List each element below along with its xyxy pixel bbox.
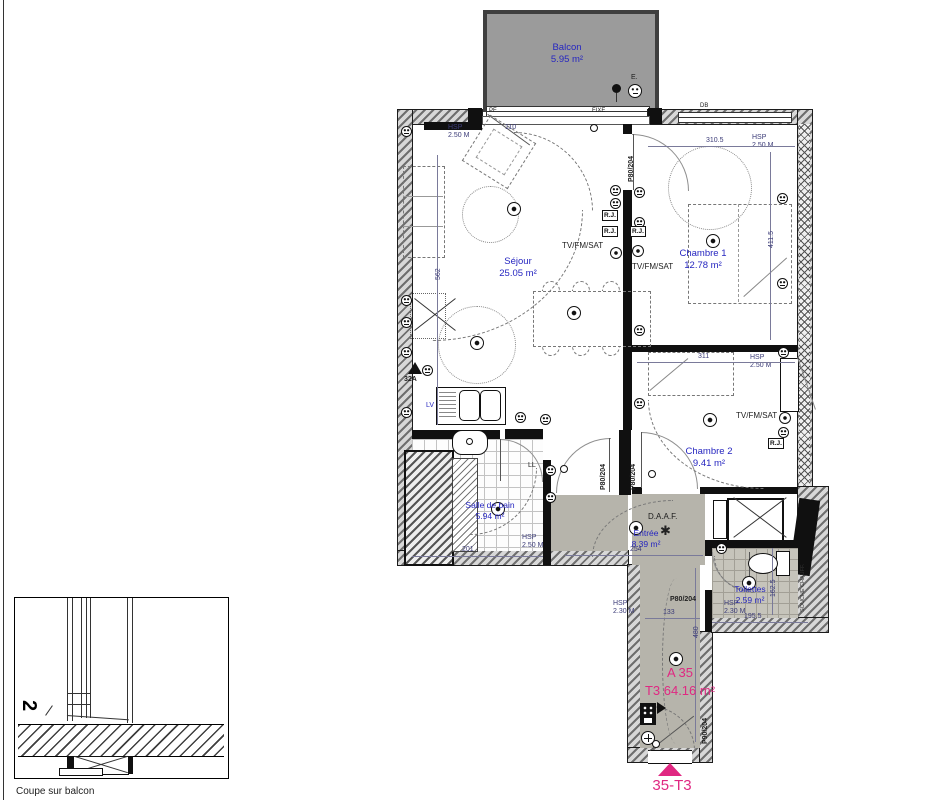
window-pf-label: PF <box>489 108 497 114</box>
dim-133: 133 <box>663 609 675 617</box>
ch2-door-leaf <box>641 432 642 488</box>
balcony-light-stem <box>616 93 617 102</box>
dim-line <box>648 146 795 147</box>
dim-line <box>712 622 808 623</box>
rj45-label: R.J. <box>604 228 616 235</box>
shaft-line1: SOUCHE <box>800 588 806 612</box>
sink-bowl-left <box>459 390 480 421</box>
rj45-outlet: R.J. <box>768 438 784 449</box>
chair <box>572 281 590 291</box>
chair <box>542 346 560 356</box>
dishwasher-label: LV <box>426 402 434 409</box>
hsp-ch1: HSP2.50 M <box>752 134 773 151</box>
sejour-name: Séjour <box>504 256 531 267</box>
section-frame-line <box>90 598 91 718</box>
socket-icon <box>716 543 727 554</box>
socket-icon <box>634 187 645 198</box>
balcony-light-icon <box>612 84 621 93</box>
tv-outlet-icon <box>632 245 644 257</box>
doorbell-icon <box>641 731 655 745</box>
chambre1-label: Chambre 1 12.78 m² <box>673 248 733 273</box>
section-level-text: 2 <box>17 700 40 711</box>
section-detail: 2 <box>14 597 229 779</box>
hsp-entree: HSP2.30 M <box>613 600 634 617</box>
guide-circle-ch1 <box>668 146 752 230</box>
light-icon <box>669 652 683 666</box>
tv-outlet-icon <box>779 412 791 424</box>
socket-icon <box>778 347 789 358</box>
tv-label-ch2: TV/FM/SAT <box>736 411 777 420</box>
chambre1-area: 12.78 m² <box>684 260 722 271</box>
dim-311: 311 <box>698 353 709 361</box>
light-icon <box>706 234 720 248</box>
switch-icon <box>590 124 598 132</box>
rj45-label: R.J. <box>770 440 782 447</box>
entry-arrow-icon <box>658 763 682 776</box>
balcony-area: 5.95 m² <box>551 54 583 65</box>
chambre2-area: 9.41 m² <box>693 458 725 469</box>
section-caption: Coupe sur balcon <box>16 786 94 797</box>
socket-icon <box>540 414 551 425</box>
door-code: P80/204 <box>630 464 637 490</box>
wall-ch1-ch2 <box>632 345 798 352</box>
entree-name: Entrée <box>633 528 658 538</box>
warning-triangle-icon <box>408 362 422 374</box>
rj45-outlet: R.J. <box>630 226 646 237</box>
section-slab <box>18 724 224 757</box>
door-code: P90/204 <box>702 718 709 744</box>
tv-outlet-icon <box>610 247 622 259</box>
chair <box>602 281 620 291</box>
sink-bowl-right <box>480 390 501 421</box>
switch-icon <box>648 470 656 478</box>
section-frame-line <box>81 598 82 718</box>
wc-door-opening <box>705 556 712 590</box>
shaft-line2: CHAUFF. <box>800 564 806 587</box>
socket-icon <box>545 465 556 476</box>
hall-west-door-leaf <box>609 438 610 492</box>
door-code: P80/204 <box>628 156 635 182</box>
socket-icon <box>515 412 526 423</box>
chambre2-label: Chambre 2 9.41 m² <box>679 446 739 471</box>
sdb-area: 5.94 m² <box>476 511 505 521</box>
socket-icon <box>401 317 412 328</box>
section-frame-line <box>67 598 68 721</box>
dim-3105: 310.5 <box>706 137 724 145</box>
dim-line <box>412 556 543 557</box>
socket-icon <box>401 295 412 306</box>
socket-icon <box>610 198 621 209</box>
unit-code: A 35 <box>650 665 710 680</box>
tv-label-ch1: TV/FM/SAT <box>632 262 673 271</box>
socket-icon <box>634 398 645 409</box>
amp-label: 32A <box>404 376 417 383</box>
sheet-edge <box>3 0 4 800</box>
chambre1-window <box>678 112 792 123</box>
bathtub <box>404 450 454 566</box>
dining-table <box>533 291 651 347</box>
closet-chambre2 <box>780 358 799 412</box>
balcony-socket-icon <box>628 84 642 98</box>
socket-icon <box>545 492 556 503</box>
section-frame-line <box>132 598 133 723</box>
section-step <box>67 704 91 705</box>
dim-562: 562 <box>435 268 443 280</box>
socket-icon <box>422 365 433 376</box>
shaft-label: SOUCHE CHAUFF. <box>800 564 807 612</box>
speaker-icon <box>657 702 666 714</box>
section-frame-line <box>127 598 128 723</box>
dim-1625: 162.5 <box>770 579 778 597</box>
unit-type-area: T3 64.16 m² <box>637 683 723 698</box>
entry-door-opening <box>648 750 692 764</box>
sdb-name: Salle de bain <box>465 500 514 510</box>
dim-line <box>565 555 703 556</box>
sejour-label: Séjour 25.05 m² <box>488 256 548 281</box>
window-db-label: DB <box>700 103 708 109</box>
wall-corridor-left <box>628 565 640 762</box>
bed-chambre2 <box>648 352 734 396</box>
floorplan-sheet: Balcon 5.95 m² E. PF FIXE DB SOUCHE CHAU… <box>0 0 942 800</box>
daaf-label: D.A.A.F. <box>648 512 677 521</box>
chair <box>602 346 620 356</box>
light-icon <box>703 413 717 427</box>
hsp-sdb: HSP2.50 M <box>522 534 543 551</box>
balcony-label: Balcon 5.95 m² <box>537 42 597 67</box>
socket-icon <box>777 193 788 204</box>
wall-right-insulation <box>799 124 810 487</box>
light-icon <box>470 336 484 350</box>
dim-201: 201 <box>462 546 474 554</box>
section-level-tick <box>45 705 53 715</box>
wc-name: Toilettes <box>734 584 765 594</box>
dim-line <box>637 362 795 363</box>
wall-divider-top-stub <box>623 124 632 134</box>
socket-icon <box>401 126 412 137</box>
door-code: P80/204 <box>670 596 696 603</box>
entry-tag: 35-T3 <box>644 777 700 794</box>
balcony-name: Balcon <box>552 42 581 53</box>
socket-icon <box>634 325 645 336</box>
dim-1955: 195.5 <box>744 613 762 621</box>
socket-icon <box>777 278 788 289</box>
dim-4115: 411.5 <box>768 231 776 248</box>
rj45-label: R.J. <box>604 212 616 219</box>
hall-closet-side <box>713 500 727 539</box>
rj45-label: R.J. <box>632 228 644 235</box>
section-frame-line <box>86 598 87 718</box>
chair <box>572 346 590 356</box>
switch-arc-sejour <box>514 132 593 211</box>
toilet-tank <box>776 551 790 576</box>
chambre2-name: Chambre 2 <box>686 446 733 457</box>
balcony-socket-label: E. <box>631 74 638 81</box>
entree-label: Entrée 8.39 m² <box>618 528 674 550</box>
dim-480: 480 <box>693 626 701 638</box>
wall-wc-bottom <box>712 618 828 632</box>
wall-pier-right <box>648 108 662 124</box>
socket-icon <box>610 185 621 196</box>
socket-icon <box>401 347 412 358</box>
section-base <box>59 768 103 776</box>
tv-label-sejour: TV/FM/SAT <box>562 241 603 250</box>
dim-254: 254 <box>630 546 642 554</box>
section-step <box>67 693 91 694</box>
section-frame-line <box>72 598 73 721</box>
washbasin-drain-icon <box>466 438 473 445</box>
light-icon <box>567 306 581 320</box>
chambre1-name: Chambre 1 <box>680 248 727 259</box>
switch-icon <box>560 465 568 473</box>
dim-line <box>437 155 438 425</box>
intercom-slot <box>644 718 652 723</box>
light-icon <box>507 202 521 216</box>
rj45-outlet: R.J. <box>602 210 618 221</box>
hsp-sejour: HSP2.50 M <box>448 124 469 141</box>
socket-icon <box>401 407 412 418</box>
hsp-wc: HSP2.30 M <box>724 600 745 617</box>
sejour-area: 25.05 m² <box>499 268 537 279</box>
socket-icon <box>778 427 789 438</box>
dim-line <box>695 568 696 742</box>
sdb-label: Salle de bain 5.94 m² <box>458 500 522 522</box>
dim-line <box>645 618 700 619</box>
section-sill <box>67 715 129 720</box>
sink-drainer <box>439 392 456 418</box>
door-code: P80/204 <box>600 464 607 490</box>
window-fixe-label: FIXE <box>592 108 605 114</box>
rj45-outlet: R.J. <box>602 226 618 237</box>
